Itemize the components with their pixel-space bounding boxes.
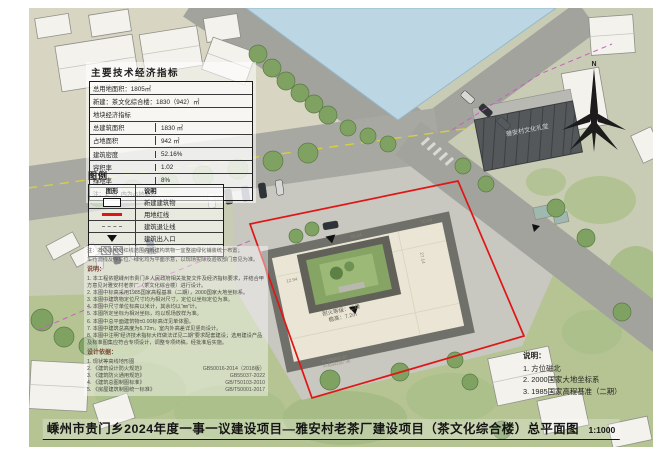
note-line: 2. 2000国家大地坐标系 [523,374,662,385]
legend-title: 图例 [88,169,224,182]
indicator-subheader: 地块经济指标 [90,108,252,121]
indicator-row-total-land: 总用地面积：1805㎡ [90,82,252,95]
indicator-row: 建筑密度 52.16% [90,148,252,161]
legend-panel: 图例 图形 说明 新建建筑物 用地红线 建筑退让线 建筑出入口 [88,168,224,257]
basis-heading: 设计依据： [87,349,265,357]
note-line: 8. 本图中注明“经济技术指标大样做法详见二期”要求配套建设；选用建设产品及标准… [87,333,265,347]
note-line: 5. 本图所定坐标为相对坐标，均以现场放样为准。 [87,311,265,318]
drawing-title: 嵊州市贵门乡2024年度一事一议建设项目—雅安村老茶厂建设项目（茶文化综合楼）总… [47,422,579,436]
north-label: N [591,61,596,68]
note-line: 7. 本图中建筑总高度为6.72m，室内外高差详见竖向设计。 [87,326,265,333]
drawing-title-underline: 嵊州市贵门乡2024年度一事一议建设项目—雅安村老茶厂建设项目（茶文化综合楼）总… [43,419,620,440]
basis-line: 5. 《房屋建筑制图统一标准》GB/T50001-2017 [87,387,265,394]
legend-item: 建筑出入口 [89,233,223,245]
note-line: 3. 1985国家高程基准（二期） [523,386,662,397]
red-line-symbol [102,213,122,216]
note-line: 注：本项目用地红线范围内新建构筑物一宜整遍绿化铺装统一布置； [87,248,265,255]
note-line: 车行流线及停车位、绿化均为平面示意，以现场实际及验收部门意见为准。 [87,257,265,264]
indicator-row: 总建筑面积 1830 ㎡ [90,122,252,135]
basis-line: 2. 《建筑设计防火规范》GB50016-2014（2018版） [87,366,265,373]
legend-item: 新建建筑物 [89,197,223,209]
note-line: 1. 方位磁北 [523,363,662,374]
notes-heading: 说明： [87,266,265,274]
notes-right-panel: 说明： 1. 方位磁北 2. 2000国家大地坐标系 3. 1985国家高程基准… [523,348,662,397]
new-building-symbol [103,198,121,207]
drawing-scale: 1:1000 [589,425,616,435]
site-plan-sheet: 雅安村文化礼堂 30.24 10.44 12.94 27.14 [0,0,662,468]
notes-left-panel: 注：本项目用地红线范围内新建构筑物一宜整遍绿化铺装统一布置； 车行流线及停车位、… [84,246,268,396]
indicator-row-new-building: 新建：茶文化综合楼：1830（942）㎡ [90,95,252,108]
notes-right-heading: 说明： [523,350,662,362]
legend-header: 图形 说明 [89,185,223,197]
indicator-row: 占地面积 942 ㎡ [90,135,252,148]
basis-line: 1. 现状等高线地形图 [87,359,265,366]
indicators-title: 主要技术经济指标 [91,65,253,79]
legend-item: 建筑退让线 [89,221,223,233]
note-line: 6. 本图中总平面建筑物±0.00标高详见单体图。 [87,319,265,326]
drawing-title-bar: 嵊州市贵门乡2024年度一事一议建设项目—雅安村老茶厂建设项目（茶文化综合楼）总… [43,419,620,440]
entrance-arrow-symbol [107,235,117,242]
note-line: 1. 本工程依据嵊州市贵门乡人民政府相关批复文件及经济指标要求，并结合甲方意见对… [87,276,265,290]
setback-line-symbol [102,226,122,227]
legend-item: 用地红线 [89,209,223,221]
